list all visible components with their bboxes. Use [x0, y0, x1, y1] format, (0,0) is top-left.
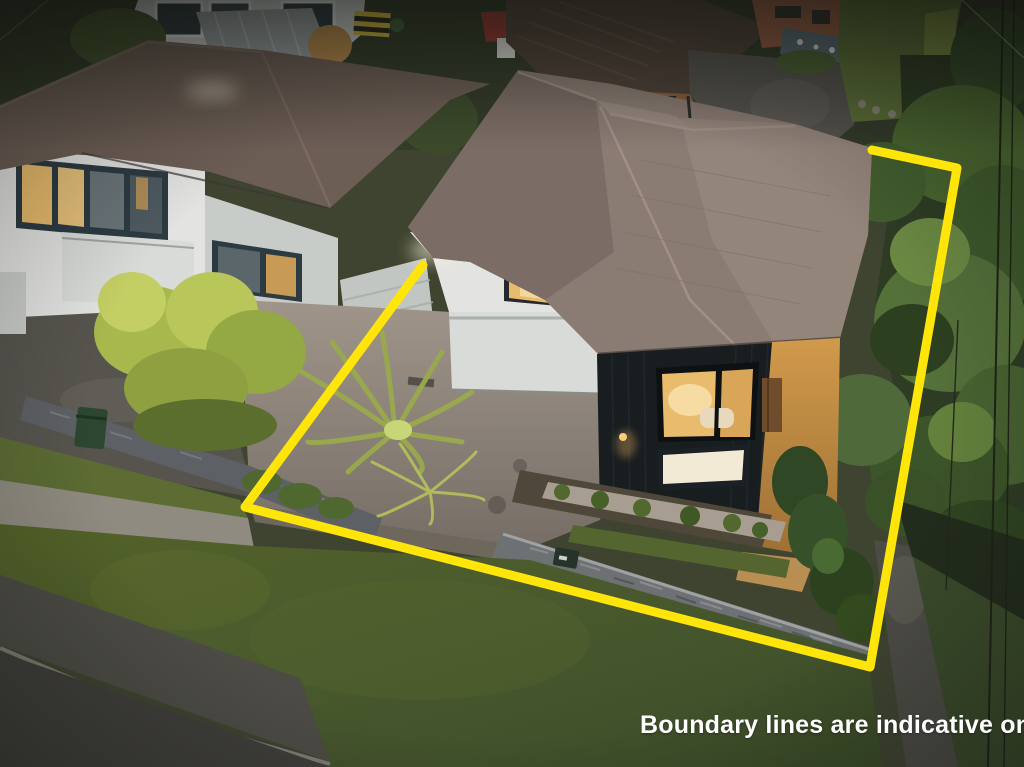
- aerial-photo: Boundary lines are indicative only: [0, 0, 1024, 767]
- boundary-caption: Boundary lines are indicative only: [640, 711, 1024, 740]
- photo-canvas: [0, 0, 1024, 767]
- top-darkening: [0, 0, 1024, 150]
